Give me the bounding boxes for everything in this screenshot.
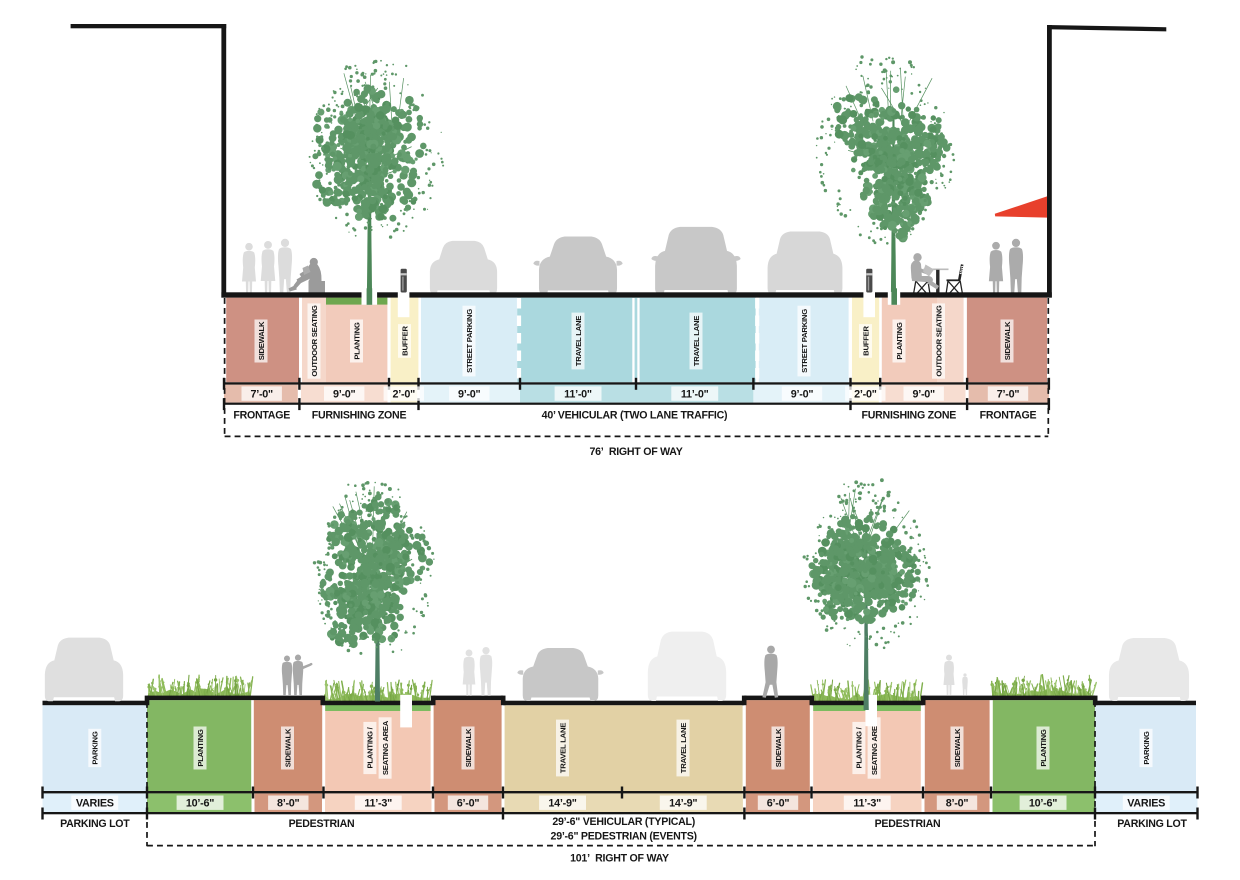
svg-text:14’-9": 14’-9" [548, 798, 576, 810]
svg-text:TRAVEL LANE: TRAVEL LANE [574, 316, 583, 366]
svg-text:FRONTAGE: FRONTAGE [233, 409, 290, 421]
svg-text:PARKING: PARKING [91, 731, 100, 764]
svg-text:6’-0": 6’-0" [457, 798, 480, 810]
svg-text:PLANTING: PLANTING [196, 729, 205, 767]
svg-text:10’-6": 10’-6" [186, 798, 214, 810]
svg-text:STREET PARKING: STREET PARKING [800, 309, 809, 373]
svg-text:SIDEWALK: SIDEWALK [464, 728, 473, 767]
svg-text:11’-0": 11’-0" [564, 389, 592, 401]
svg-text:29’-6" VEHICULAR (TYPICAL): 29’-6" VEHICULAR (TYPICAL) [552, 816, 695, 828]
svg-text:9’-0": 9’-0" [333, 389, 356, 401]
svg-text:FURNISHING ZONE: FURNISHING ZONE [862, 409, 957, 421]
svg-text:BUFFER: BUFFER [861, 325, 870, 355]
svg-text:TRAVEL LANE: TRAVEL LANE [679, 723, 688, 773]
svg-text:6’-0": 6’-0" [767, 798, 790, 810]
svg-text:14’-9": 14’-9" [669, 798, 697, 810]
svg-text:OUTDOOR SEATING: OUTDOOR SEATING [934, 305, 943, 377]
svg-text:PARKING LOT: PARKING LOT [1117, 818, 1187, 830]
svg-text:VARIES: VARIES [76, 798, 114, 810]
svg-text:9’-0": 9’-0" [912, 389, 935, 401]
svg-text:PEDESTRIAN: PEDESTRIAN [289, 818, 355, 830]
svg-text:40’ VEHICULAR (TWO LANE TRAFFI: 40’ VEHICULAR (TWO LANE TRAFFIC) [542, 409, 728, 421]
svg-text:9’-0": 9’-0" [458, 389, 481, 401]
svg-text:TRAVEL LANE: TRAVEL LANE [558, 723, 567, 773]
svg-text:PLANTING /: PLANTING / [855, 726, 864, 768]
svg-text:PLANTING: PLANTING [352, 322, 361, 360]
svg-text:9’-0": 9’-0" [791, 389, 814, 401]
svg-text:101’ RIGHT OF WAY: 101’ RIGHT OF WAY [570, 853, 669, 865]
svg-text:SIDEWALK: SIDEWALK [257, 321, 266, 360]
svg-text:SEATING AREA: SEATING AREA [381, 720, 390, 775]
svg-text:76’ RIGHT OF WAY: 76’ RIGHT OF WAY [589, 446, 682, 458]
svg-text:8’-0": 8’-0" [946, 798, 969, 810]
svg-text:PEDESTRIAN: PEDESTRIAN [875, 818, 941, 830]
svg-text:SIDEWALK: SIDEWALK [1003, 321, 1012, 360]
svg-text:29’-6" PEDESTRIAN (EVENTS): 29’-6" PEDESTRIAN (EVENTS) [551, 830, 697, 842]
svg-text:SIDEWALK: SIDEWALK [953, 728, 962, 767]
svg-text:PLANTING: PLANTING [895, 322, 904, 360]
svg-text:TRAVEL LANE: TRAVEL LANE [692, 316, 701, 366]
svg-text:VARIES: VARIES [1127, 798, 1165, 810]
svg-text:7’-0": 7’-0" [250, 389, 273, 401]
svg-text:SEATING AREA: SEATING AREA [870, 720, 879, 775]
svg-text:8’-0": 8’-0" [277, 798, 300, 810]
svg-text:11’-3": 11’-3" [364, 798, 392, 810]
svg-text:FRONTAGE: FRONTAGE [980, 409, 1037, 421]
svg-text:2’-0": 2’-0" [854, 389, 877, 401]
svg-text:PLANTING: PLANTING [1039, 729, 1048, 767]
svg-text:SIDEWALK: SIDEWALK [774, 728, 783, 767]
svg-text:BUFFER: BUFFER [400, 325, 409, 355]
svg-text:2’-0": 2’-0" [393, 389, 416, 401]
svg-text:PARKING LOT: PARKING LOT [60, 818, 130, 830]
svg-text:OUTDOOR SEATING: OUTDOOR SEATING [310, 305, 319, 377]
svg-text:PLANTING /: PLANTING / [366, 726, 375, 768]
svg-text:7’-0": 7’-0" [997, 389, 1020, 401]
svg-text:10’-6": 10’-6" [1029, 798, 1057, 810]
svg-text:STREET PARKING: STREET PARKING [465, 309, 474, 373]
svg-text:11’-0": 11’-0" [681, 389, 709, 401]
svg-text:11’-3": 11’-3" [853, 798, 881, 810]
svg-text:FURNISHING ZONE: FURNISHING ZONE [312, 409, 407, 421]
svg-text:SIDEWALK: SIDEWALK [283, 728, 292, 767]
svg-text:PARKING: PARKING [1142, 731, 1151, 764]
